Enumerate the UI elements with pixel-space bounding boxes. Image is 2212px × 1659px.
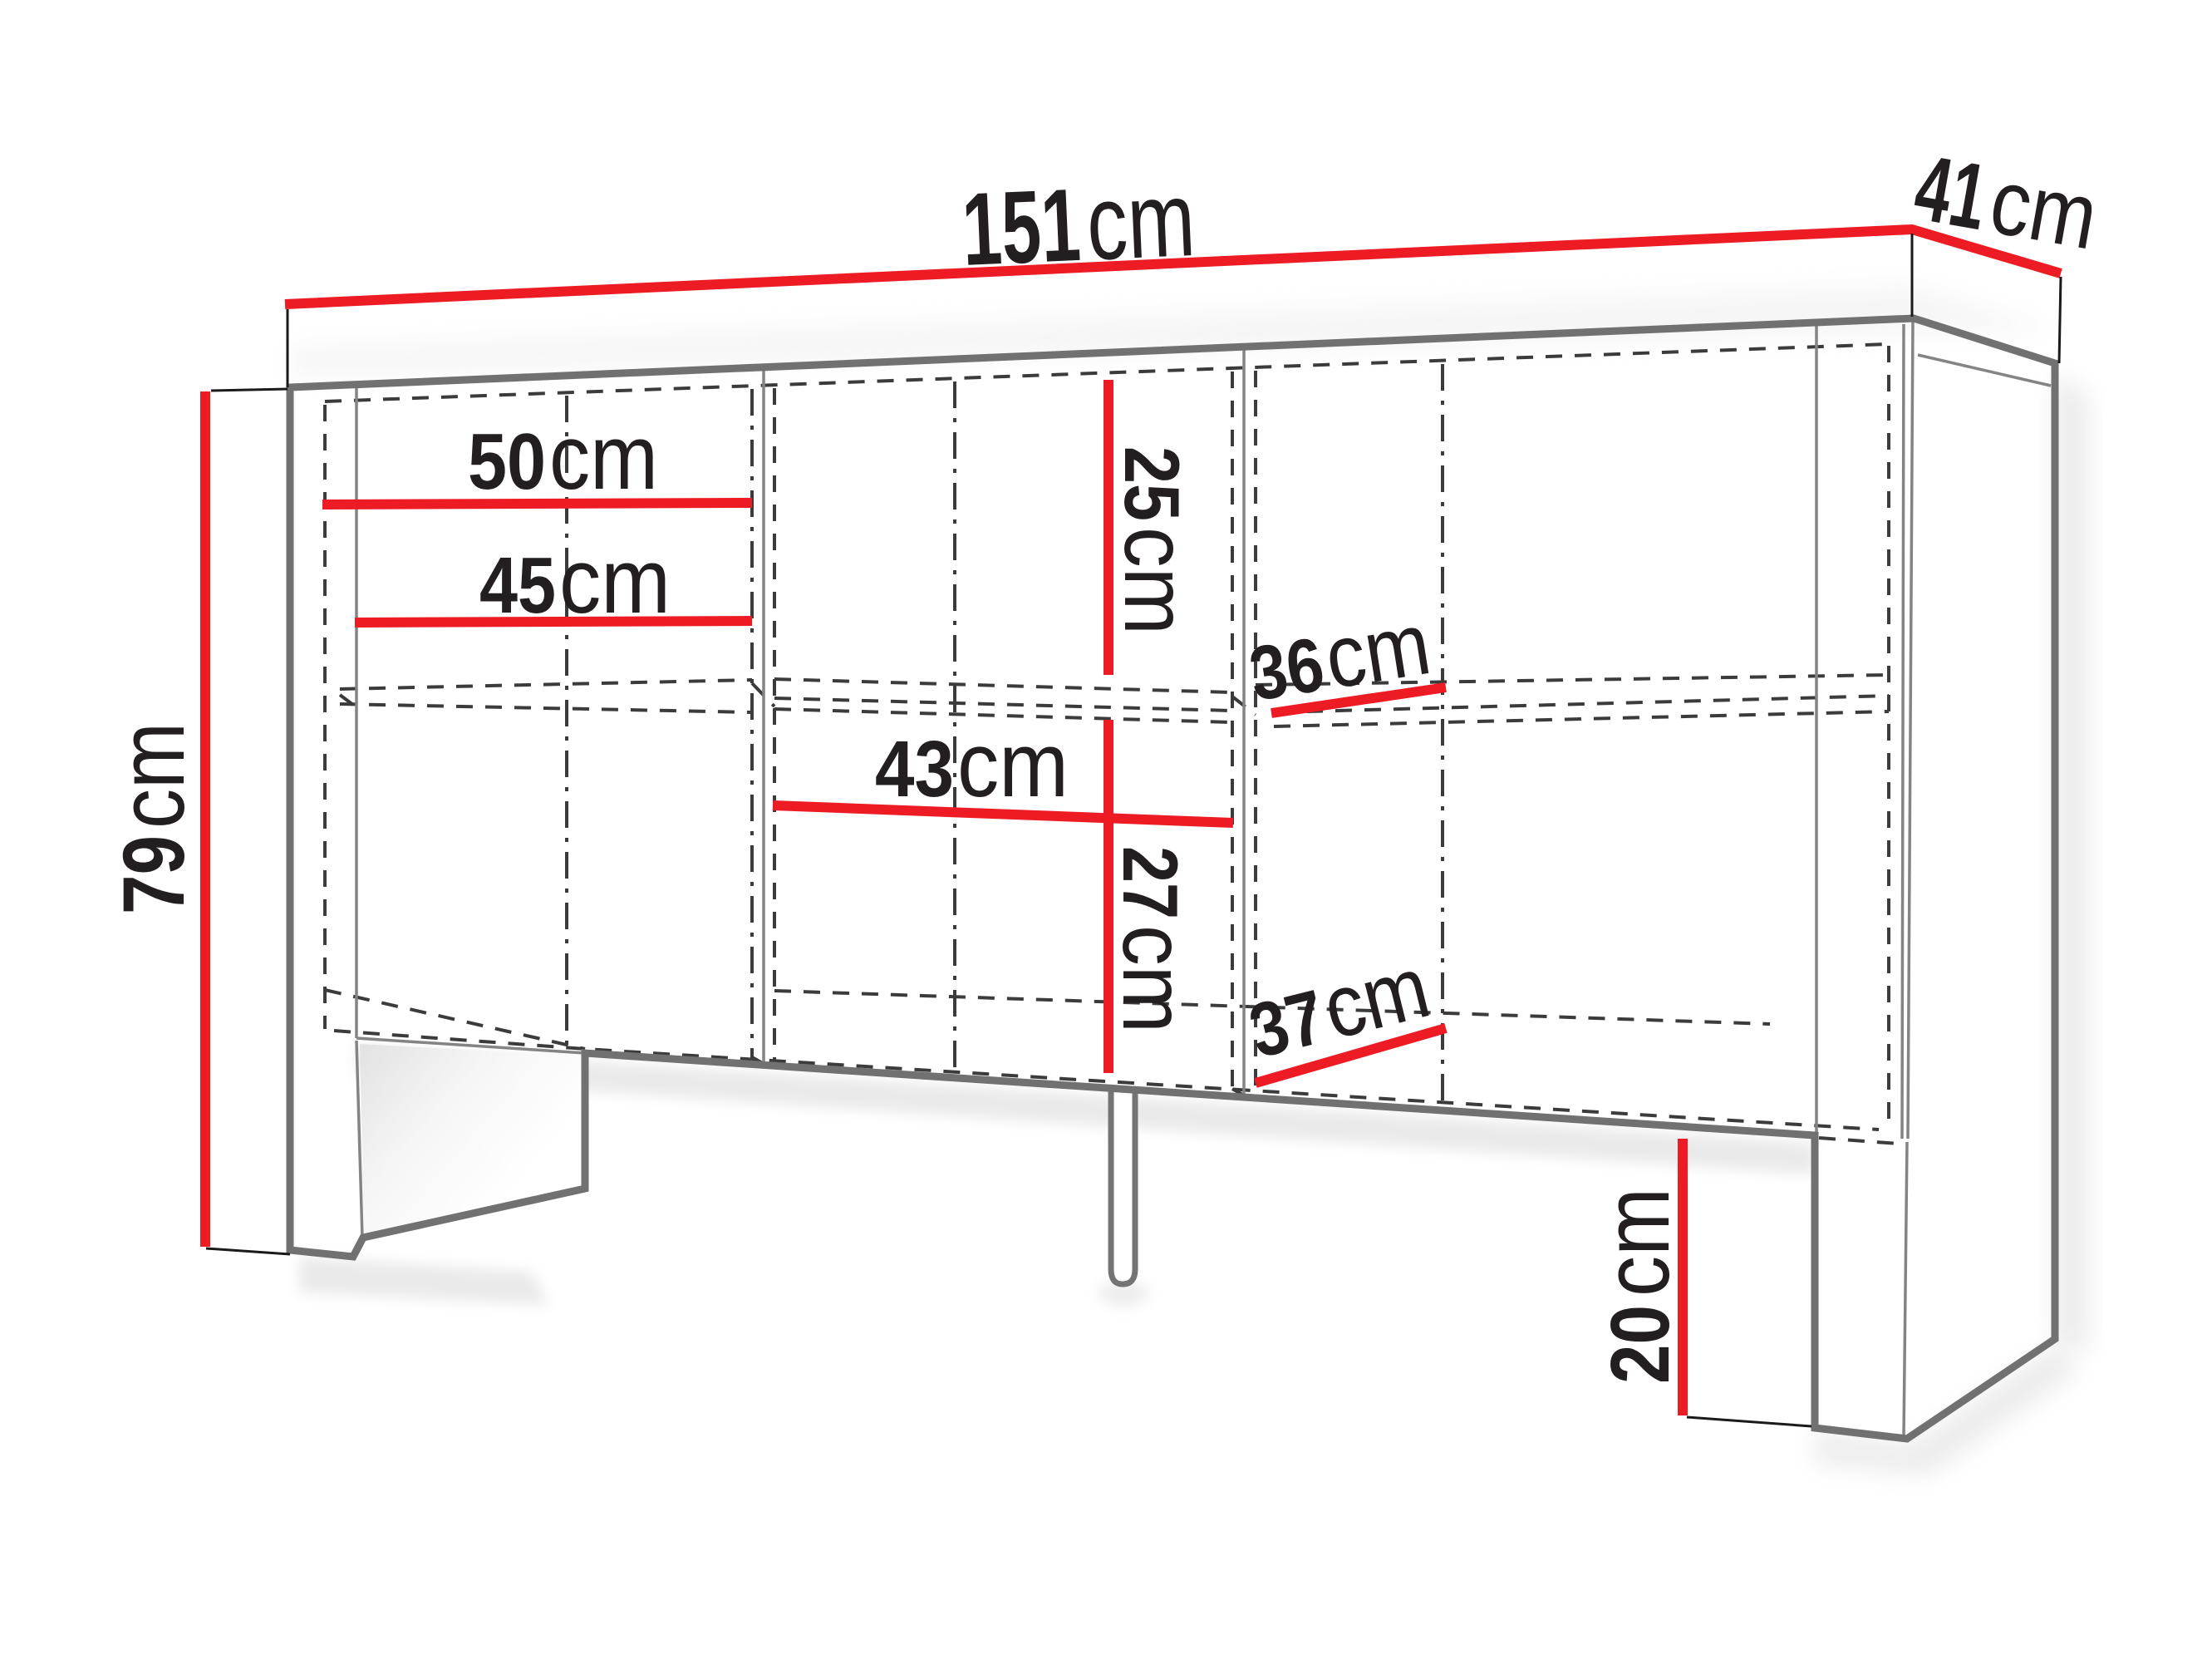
svg-text:151: 151	[960, 168, 1083, 288]
svg-text:cm: cm	[957, 714, 1069, 816]
svg-text:cm: cm	[1319, 594, 1437, 707]
svg-text:41: 41	[1908, 135, 1994, 250]
svg-text:27: 27	[1107, 846, 1194, 919]
svg-text:cm: cm	[1983, 149, 2105, 269]
svg-text:43: 43	[875, 725, 954, 814]
svg-text:50: 50	[468, 417, 546, 506]
svg-text:45: 45	[479, 541, 556, 630]
svg-text:cm: cm	[1106, 527, 1207, 635]
svg-text:cm: cm	[1104, 925, 1205, 1033]
svg-text:cm: cm	[559, 530, 671, 633]
svg-text:cm: cm	[549, 406, 658, 509]
svg-text:36: 36	[1244, 622, 1330, 717]
svg-text:37: 37	[1241, 974, 1333, 1074]
svg-text:79: 79	[106, 835, 203, 914]
svg-text:cm: cm	[100, 722, 204, 829]
svg-text:20: 20	[1594, 1305, 1687, 1384]
svg-text:cm: cm	[1084, 160, 1197, 283]
svg-text:cm: cm	[1585, 1188, 1688, 1297]
svg-text:25: 25	[1108, 446, 1196, 521]
